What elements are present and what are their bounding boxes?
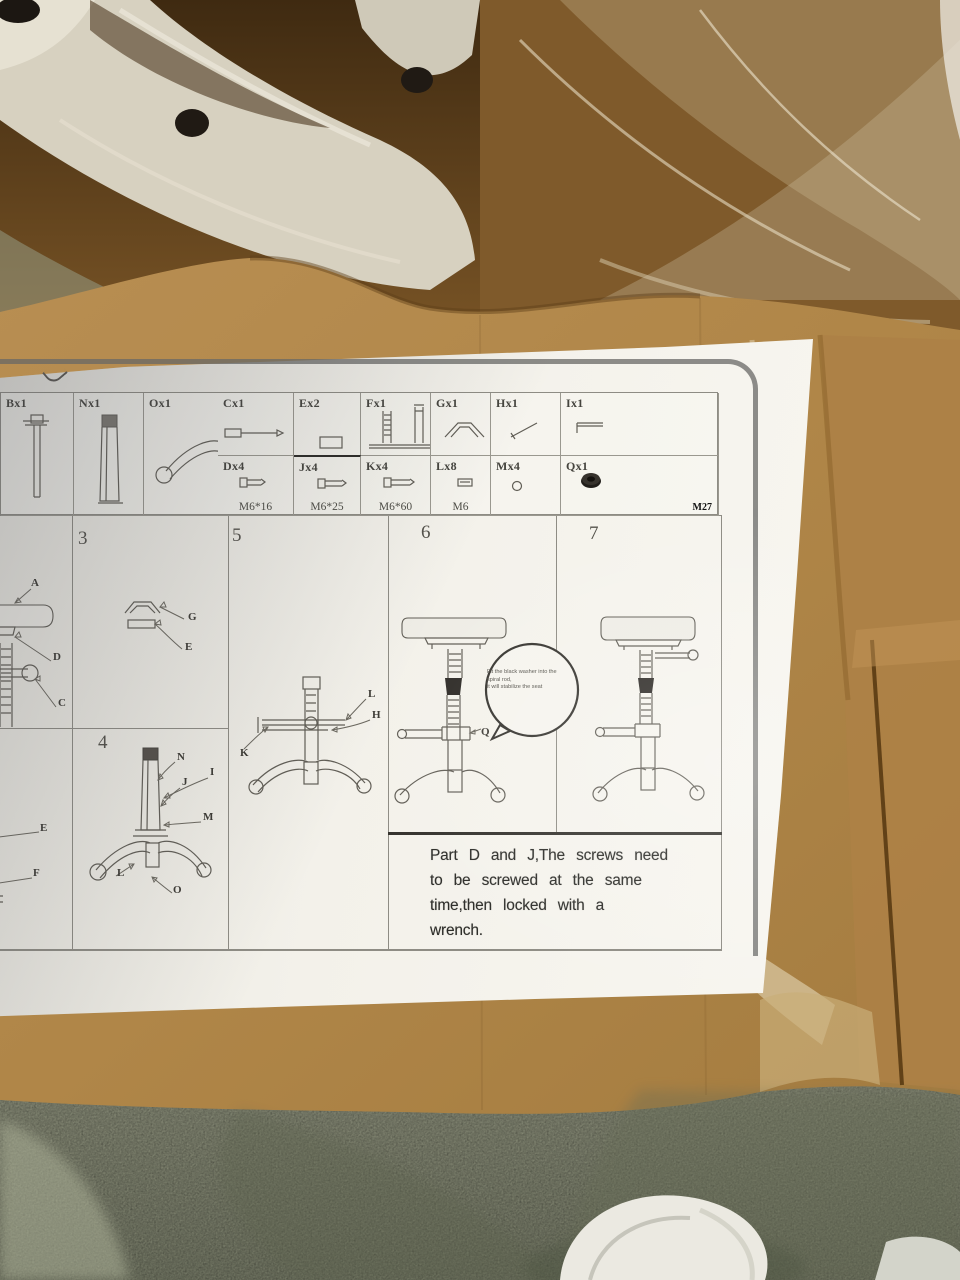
part-cell-Q: Qx1 M27 <box>561 456 719 516</box>
part-ref-label: E <box>40 822 47 834</box>
part-cell-H: Hx1 <box>491 393 561 456</box>
part-ref-label: L <box>117 867 124 879</box>
part-cell-O: Ox1 <box>144 393 218 516</box>
instruction-sheet: Bx1 Cx1 Ex2 Fx1 <box>0 335 830 1025</box>
balloon-line: spiral rod, <box>487 677 579 685</box>
threaded-posts-icon <box>361 393 431 456</box>
part-cell-M: Mx4 <box>491 456 561 516</box>
photo-scene: { "sheet": { "parts": { "b": {"label": "… <box>0 0 960 1280</box>
part-spec: M6*25 <box>294 501 360 513</box>
part-cell-D: Dx4 M6*16 <box>218 456 294 516</box>
step-7-illustration <box>556 517 722 819</box>
part-ref-label: J <box>182 776 188 788</box>
note-line: to be screwed at the same <box>430 868 720 893</box>
step-number: 3 <box>78 528 88 550</box>
arch-bracket-icon <box>431 393 491 456</box>
part-ref-label: C <box>58 697 66 709</box>
step-4-illustration <box>72 730 228 950</box>
t-bolt-icon <box>1 393 74 515</box>
part-ref-label: M <box>203 811 213 823</box>
spacer-plate-icon <box>294 393 361 456</box>
column-tube-icon <box>74 393 144 515</box>
part-spec: M27 <box>561 502 712 513</box>
part-ref-label: H <box>372 709 381 721</box>
part-cell-K: Kx4 M6*60 <box>361 456 431 516</box>
step-number: 5 <box>232 525 242 547</box>
part-cell-F: Fx1 <box>361 393 431 456</box>
part-ref-label: E <box>185 641 192 653</box>
allen-key-icon <box>561 393 621 456</box>
balloon-line: Fit the black washer into the <box>487 669 579 677</box>
assembly-note: Part D and J,The screws need to be screw… <box>430 843 720 943</box>
part-ref-label: G <box>188 611 197 623</box>
step-number: 7 <box>589 523 599 545</box>
washer-icon <box>491 456 561 515</box>
part-ref-label: A <box>31 577 39 589</box>
part-cell-C: Cx1 <box>218 393 294 456</box>
balloon-note: Fit the black washer into the spiral rod… <box>487 669 579 692</box>
note-top-border <box>388 832 722 835</box>
part-ref-label: N <box>177 751 185 763</box>
part-ref-label: L <box>368 688 375 700</box>
part-ref-label: D <box>53 651 61 663</box>
long-screw-icon <box>218 393 288 456</box>
part-cell-N: Nx1 <box>74 393 144 516</box>
balloon-line: it will stabilize the seat <box>487 684 579 692</box>
part-ref-label: O <box>173 884 182 896</box>
note-line: Part D and J,The screws need <box>430 843 720 868</box>
part-cell-B: Bx1 <box>1 393 74 516</box>
part-spec: M6*60 <box>361 501 430 513</box>
part-cell-I: Ix1 <box>561 393 719 456</box>
part-spec: M6 <box>431 501 490 513</box>
note-line: wrench. <box>430 918 720 943</box>
part-ref-label: F <box>33 867 40 879</box>
rod-key-icon <box>491 393 561 456</box>
plastic-bag-top <box>480 0 960 330</box>
screw-hole <box>175 109 209 137</box>
note-line: time,then locked with a <box>430 893 720 918</box>
part-cell-E: Ex2 <box>294 393 361 456</box>
part-ref-label: Q <box>481 726 490 738</box>
part-ref-label: I <box>210 766 214 778</box>
part-ref-label: K <box>240 747 249 759</box>
step-number: 4 <box>98 732 108 754</box>
curved-legs-icon <box>144 393 218 515</box>
carpet <box>0 1086 960 1280</box>
screw-hole <box>401 67 433 93</box>
step-number: 6 <box>421 522 431 544</box>
part-cell-L: Lx8 M6 <box>431 456 491 516</box>
parts-table: Bx1 Cx1 Ex2 Fx1 <box>0 392 718 515</box>
part-spec: M6*16 <box>218 501 293 513</box>
step-illustration-partial-bottom <box>0 730 72 950</box>
step-5-illustration <box>228 517 388 950</box>
part-cell-G: Gx1 <box>431 393 491 456</box>
grid-line <box>0 728 228 729</box>
part-cell-J: Jx4 M6*25 <box>294 455 361 516</box>
step-3-illustration <box>72 517 228 728</box>
